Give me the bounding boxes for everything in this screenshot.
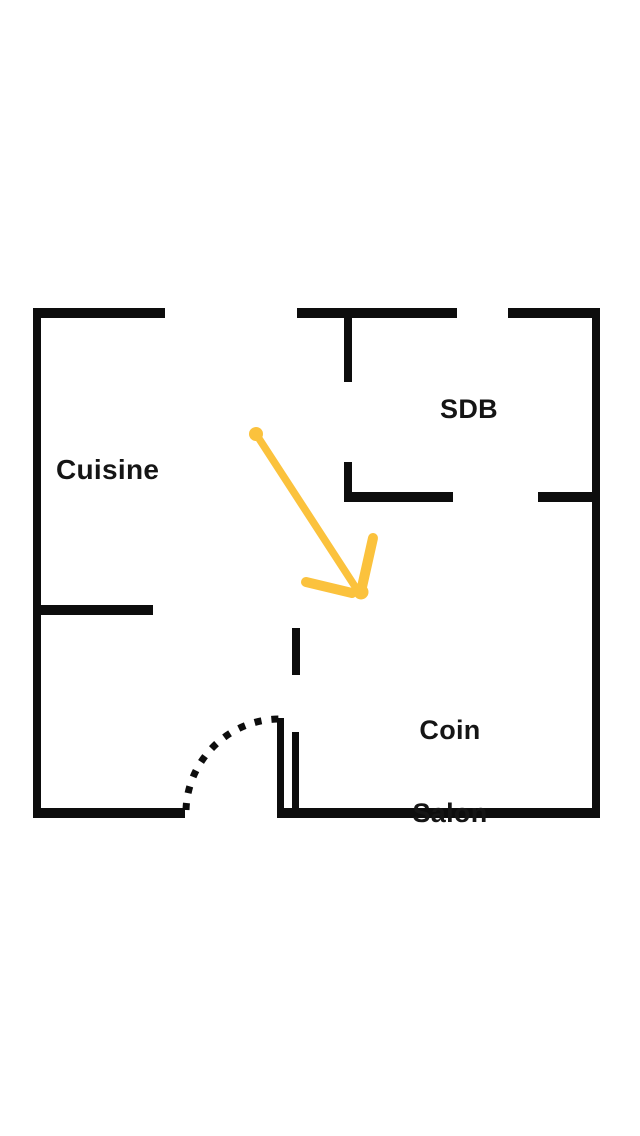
wall-right (592, 308, 600, 818)
room-label-coin-salon-line2: Salon (395, 800, 505, 828)
wall-top-sdb-left (297, 308, 457, 318)
wall-top-sdb-right (508, 308, 600, 318)
wall-bottom-left (33, 808, 185, 818)
room-label-coin-salon-line1: Coin (395, 717, 505, 745)
hand-drawn-arrow-icon (249, 427, 373, 600)
door-leaf-outer (277, 718, 284, 818)
wall-sdb-stub-top (344, 308, 352, 382)
room-label-sdb: SDB (436, 396, 502, 423)
wall-sdb-bottom-left (344, 492, 453, 502)
wall-left (33, 308, 41, 818)
room-label-cuisine: Cuisine (56, 456, 158, 484)
room-label-coin-salon: Coin Salon (395, 662, 505, 882)
floor-plan: Cuisine SDB Coin Salon (0, 0, 640, 1136)
door-leaf-inner (292, 732, 299, 809)
wall-hall-stub (292, 628, 300, 675)
wall-sdb-bottom-right (538, 492, 600, 502)
wall-cuisine-bottom (33, 605, 153, 615)
wall-top-cuisine (33, 308, 165, 318)
door-swing-arc (186, 719, 280, 810)
